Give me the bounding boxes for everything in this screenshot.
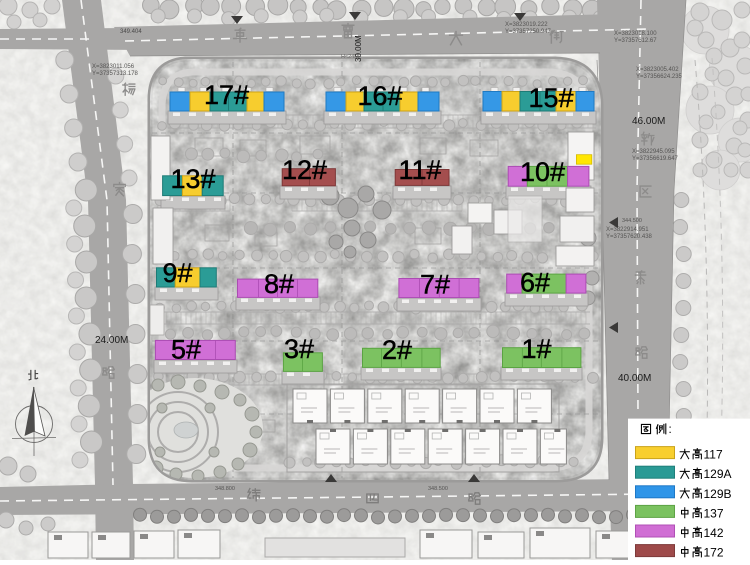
- svg-text:2#: 2#: [382, 335, 412, 365]
- svg-text:172: 172: [704, 546, 724, 560]
- svg-text:348.500: 348.500: [428, 486, 448, 492]
- svg-text:Y=37357620.438: Y=37357620.438: [606, 234, 653, 240]
- svg-text:12#: 12#: [282, 155, 327, 185]
- svg-text:9#: 9#: [162, 258, 192, 288]
- svg-text:11#: 11#: [398, 155, 441, 185]
- svg-text:Y=37357313.178: Y=37357313.178: [92, 71, 139, 77]
- svg-text:Y=37357250.947: Y=37357250.947: [505, 29, 552, 35]
- svg-text:129A: 129A: [704, 467, 732, 481]
- svg-text::: :: [669, 424, 672, 436]
- svg-text:46.00M: 46.00M: [632, 116, 665, 127]
- svg-text:13#: 13#: [170, 164, 215, 194]
- svg-text:7#: 7#: [420, 270, 450, 300]
- svg-text:15#: 15#: [528, 83, 573, 113]
- svg-text:X=3822914.951: X=3822914.951: [606, 227, 649, 233]
- svg-text:137: 137: [704, 506, 724, 520]
- svg-text:17#: 17#: [204, 80, 249, 110]
- svg-text:X=3823011.056: X=3823011.056: [92, 64, 135, 70]
- svg-text:X=3823019.222: X=3823019.222: [505, 22, 548, 28]
- svg-text:Y=37356619.647: Y=37356619.647: [632, 156, 679, 162]
- svg-text:344.500: 344.500: [622, 218, 642, 224]
- svg-text:Y=37356624.235: Y=37356624.235: [636, 74, 683, 80]
- svg-text:30.00M: 30.00M: [354, 35, 363, 62]
- svg-text:3#: 3#: [284, 334, 314, 364]
- svg-text:349.404: 349.404: [120, 29, 142, 35]
- svg-text:Y=37357612.67: Y=37357612.67: [614, 38, 657, 44]
- svg-text:40.00M: 40.00M: [618, 373, 651, 384]
- svg-text:348.800: 348.800: [215, 486, 235, 492]
- svg-text:1#: 1#: [521, 334, 551, 364]
- svg-text:5#: 5#: [171, 335, 201, 365]
- svg-text:142: 142: [704, 526, 724, 540]
- svg-text:X=3823018.100: X=3823018.100: [614, 31, 657, 37]
- svg-text:24.00M: 24.00M: [95, 335, 128, 346]
- svg-text:16#: 16#: [357, 81, 402, 111]
- svg-text:X=3822945.095: X=3822945.095: [632, 149, 675, 155]
- svg-text:117: 117: [704, 448, 723, 462]
- svg-text:6#: 6#: [520, 268, 550, 298]
- svg-text:10#: 10#: [520, 157, 565, 187]
- svg-text:8#: 8#: [264, 269, 294, 299]
- svg-text:129B: 129B: [704, 487, 732, 501]
- svg-text:X=3823005.402: X=3823005.402: [636, 67, 679, 73]
